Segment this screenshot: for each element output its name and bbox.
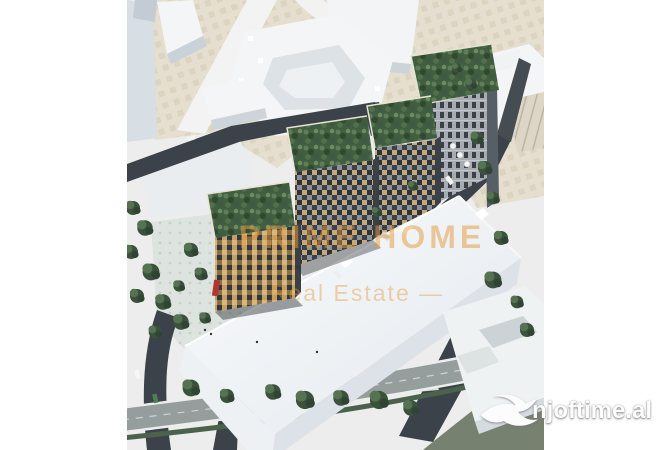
swallow-bird-icon [479, 393, 539, 429]
watermark-tagline: Real Estate — [251, 280, 463, 307]
cafe-umbrella [450, 143, 456, 149]
render-photo: PRIME HOME Real Estate — [127, 0, 544, 450]
site-logo: njoftime.al [479, 393, 652, 429]
site-logo-text: njoftime.al [532, 397, 652, 425]
watermark-brand: PRIME HOME [239, 219, 483, 256]
listing-photo-canvas: PRIME HOME Real Estate — njoftime.al [0, 0, 670, 450]
